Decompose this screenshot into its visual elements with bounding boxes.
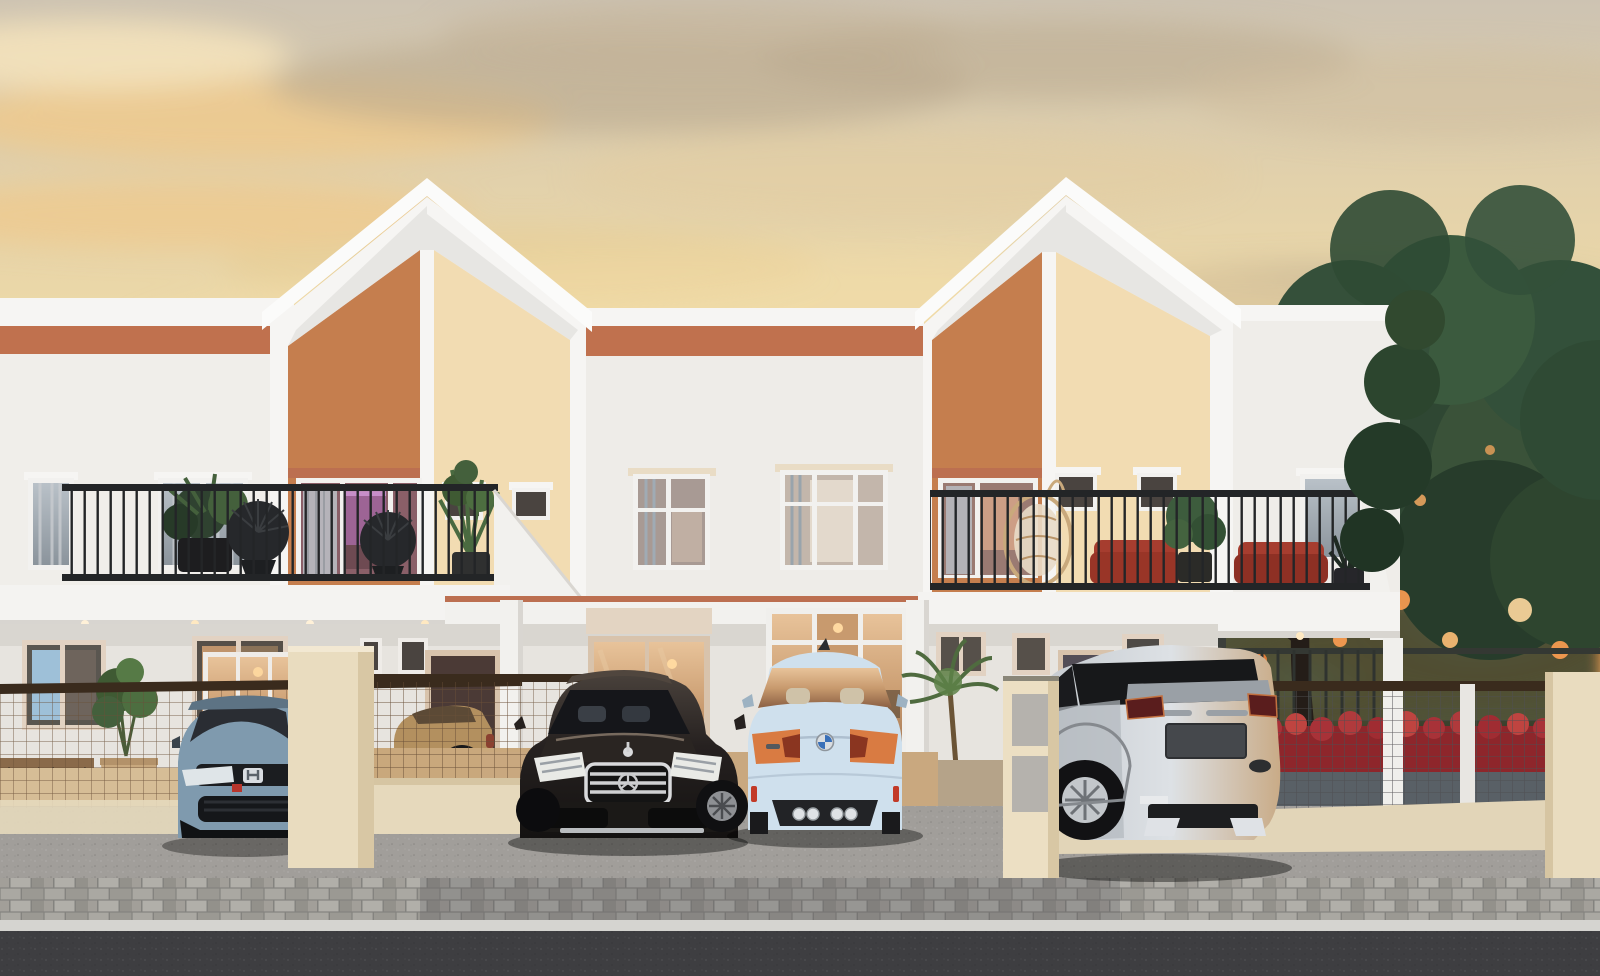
gate-pillar-right: [1003, 676, 1059, 878]
roof-trim: [0, 298, 294, 328]
pillar-panel: [1012, 756, 1048, 812]
ground-window: [1012, 633, 1050, 675]
scene-render: [0, 0, 1600, 976]
pillar-cap: [1003, 676, 1059, 681]
bmw-reflector: [751, 786, 757, 802]
fascia-band: [0, 326, 294, 356]
railing-bars: [62, 491, 498, 576]
bmw-wheel: [750, 812, 768, 834]
salmon-strip: [288, 468, 420, 478]
rover-exhaust: [1230, 818, 1266, 836]
bmw-exhaust: [793, 808, 805, 820]
mercedes-windshield: [548, 690, 690, 734]
pillar-shade: [358, 648, 374, 868]
mercedes-star-stem: [627, 742, 630, 752]
right-beige-wall-shade: [1545, 672, 1553, 878]
pillar-shade: [1048, 678, 1059, 878]
fascia-band: [586, 326, 924, 358]
bmw-taillight-right-inner: [850, 734, 868, 758]
roof-trim: [586, 308, 924, 328]
rover-landrover-badge: [1249, 760, 1271, 773]
mercedes-chrome-strip: [560, 828, 704, 833]
rover-spokes: [1065, 780, 1105, 820]
pillar-panel: [1012, 694, 1048, 746]
rover-license-plate: [1166, 724, 1246, 758]
pillar-cap: [288, 646, 374, 652]
railing-bottom-rail: [930, 583, 1372, 590]
scene-stage: [0, 0, 1600, 976]
rover-taillight-right: [1248, 694, 1277, 717]
car-shadow: [1028, 854, 1292, 882]
rover-badge-text-right: [1206, 710, 1248, 716]
roof-trim: [1228, 305, 1400, 323]
bmw-taillight-left-inner: [782, 734, 800, 758]
middle-flat-section: [586, 308, 924, 606]
gable-small-window: [509, 482, 553, 520]
bmw-exhaust: [845, 808, 857, 820]
railing-bars: [930, 497, 1372, 585]
mercedes-wheel: [516, 788, 560, 832]
bmw-m4-badge: [766, 744, 780, 749]
rover-taillight-left: [1126, 696, 1164, 719]
bmw-wheel: [882, 812, 900, 834]
asphalt-texture: [0, 931, 1600, 976]
bmw-headrest: [786, 688, 810, 704]
railing-bottom-rail: [62, 574, 498, 581]
right-beige-wall: [1545, 672, 1600, 878]
rover-marker-light: [1140, 796, 1168, 804]
bmw-exhaust: [831, 808, 843, 820]
bmw-rear-glass: [758, 668, 892, 708]
bmw-diffuser: [772, 800, 878, 826]
mercedes-seat: [622, 706, 650, 722]
honda-si-badge: [232, 784, 242, 792]
back-fence-rail: [1215, 648, 1600, 654]
upper-window: [628, 468, 716, 570]
paver-dark-patch: [420, 878, 1120, 922]
bmw-reflector: [893, 786, 899, 802]
railing-top-rail: [930, 490, 1372, 497]
rover-exhaust: [1144, 818, 1180, 836]
salmon-strip: [932, 468, 1042, 478]
bmw-headrest: [840, 688, 864, 704]
cloud: [575, 131, 1235, 219]
mercedes-seat: [578, 706, 606, 722]
gate-pillar-left: [288, 646, 374, 868]
bmw-exhaust: [807, 808, 819, 820]
right-balcony: [918, 481, 1400, 640]
fence-top-rail: [372, 674, 588, 682]
railing-top-rail: [62, 484, 498, 491]
upper-window: [775, 464, 893, 570]
